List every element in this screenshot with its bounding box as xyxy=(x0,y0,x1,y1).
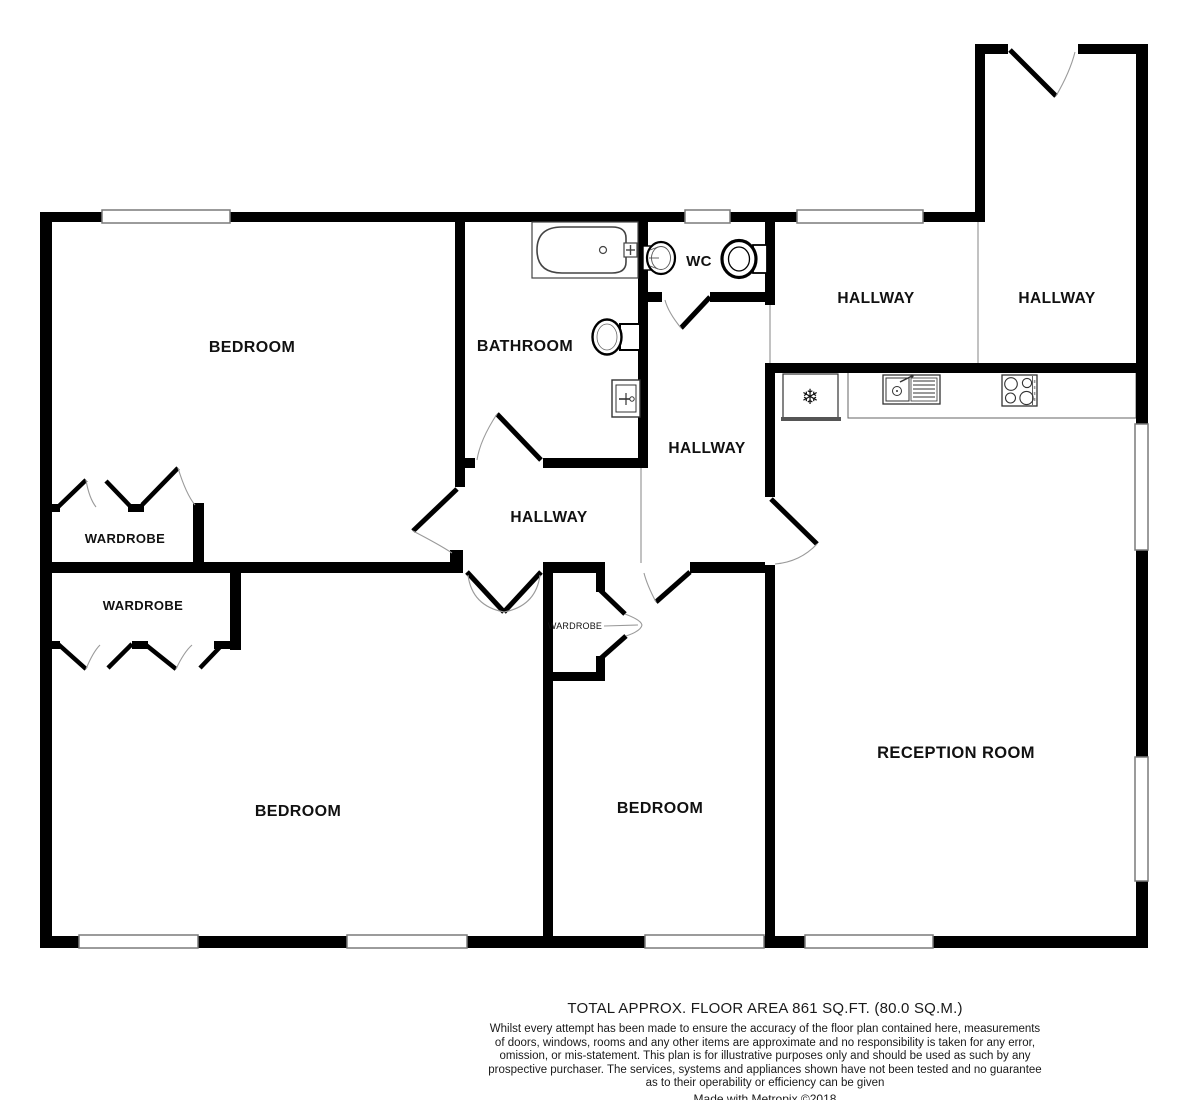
window xyxy=(685,210,730,223)
room-label-bedroom-3: BEDROOM xyxy=(617,800,703,817)
room-label-hallway-top-left: HALLWAY xyxy=(837,290,914,307)
door-leaf xyxy=(413,489,457,531)
wc-basin-icon xyxy=(643,242,675,274)
door-leaf xyxy=(497,414,541,460)
room-label-bathroom: BATHROOM xyxy=(477,338,573,355)
room-label-hallway-top-right: HALLWAY xyxy=(1018,290,1095,307)
hob-icon xyxy=(1002,375,1037,406)
room-label-wc: WC xyxy=(686,253,712,270)
disclaimer-line: Whilst every attempt has been made to en… xyxy=(370,1023,1160,1037)
window xyxy=(805,935,933,948)
bathroom-cabinet-icon xyxy=(612,380,640,417)
wall-bathroom-bottom-stub xyxy=(455,458,475,468)
wall-bathroom-left xyxy=(455,222,465,487)
wall-bottom xyxy=(40,936,1148,948)
door-arc xyxy=(413,531,452,553)
window xyxy=(1135,757,1148,881)
door-leaf xyxy=(504,572,541,612)
door-leaf xyxy=(656,572,690,602)
wall-wardrobe-upper-right xyxy=(193,503,204,573)
wall-wardrobe-lower-stub2 xyxy=(132,641,148,649)
wall-porch-left xyxy=(975,44,985,222)
window xyxy=(797,210,923,223)
room-label-bedroom-1: BEDROOM xyxy=(209,339,295,356)
door-arc xyxy=(1056,52,1075,96)
door-arc xyxy=(477,414,497,460)
floorplan-page: ❄ BEDROOM BATHROOM WC HALLWAY xyxy=(0,0,1200,1100)
toilet-icon xyxy=(722,241,767,278)
svg-text:❄: ❄ xyxy=(801,386,819,409)
room-label-wardrobe-lower: WARDROBE xyxy=(103,598,183,613)
disclaimer-line: omission, or mis-statement. This plan is… xyxy=(370,1050,1160,1064)
door-arc xyxy=(665,300,681,328)
metropix-credit: Made with Metropix ©2018 xyxy=(370,1092,1160,1100)
door-leaf xyxy=(600,636,626,659)
room-label-hallway-inner: HALLWAY xyxy=(510,509,587,526)
walls xyxy=(40,44,1148,948)
wall-kitchen xyxy=(765,363,1148,373)
door-arc xyxy=(775,544,817,564)
wall-wardrobe-lower-right xyxy=(230,565,241,650)
disclaimer-line: of doors, windows, rooms and any other i… xyxy=(370,1037,1160,1051)
wall-wc-bottom-stub xyxy=(648,292,662,302)
wall-wc-bottom xyxy=(710,292,773,302)
disclaimer-line: as to their operability or efficiency ca… xyxy=(370,1077,1160,1091)
room-labels: BEDROOM BATHROOM WC HALLWAY HALLWAY HALL… xyxy=(85,253,1096,820)
fridge-icon: ❄ xyxy=(781,374,841,421)
door-leaf xyxy=(600,590,625,614)
door-leaf xyxy=(771,499,817,544)
kitchen-sink-icon xyxy=(883,374,940,404)
door-arc xyxy=(626,625,642,636)
window xyxy=(102,210,230,223)
wall-small-wardrobe-right-upper xyxy=(596,568,605,592)
window xyxy=(1135,424,1148,550)
disclaimer-line: prospective purchaser. The services, sys… xyxy=(370,1064,1160,1078)
wall-mid-left xyxy=(40,562,452,573)
wall-mid-right-b xyxy=(690,562,775,573)
window xyxy=(347,935,467,948)
door-openings xyxy=(475,42,1078,565)
room-label-hallway-center: HALLWAY xyxy=(668,440,745,457)
total-area-text: TOTAL APPROX. FLOOR AREA 861 SQ.FT. (80.… xyxy=(370,1000,1160,1017)
bath-icon xyxy=(532,222,638,278)
wall-bathroom-bottom xyxy=(543,458,648,468)
wall-bedroom-divider xyxy=(543,562,553,942)
floorplan-canvas: ❄ BEDROOM BATHROOM WC HALLWAY xyxy=(0,0,1200,1100)
room-label-reception: RECEPTION ROOM xyxy=(877,744,1035,762)
door-leaf xyxy=(467,572,504,612)
room-label-wardrobe-small: WARDROBE xyxy=(548,621,602,631)
window xyxy=(645,935,764,948)
room-label-wardrobe-upper: WARDROBE xyxy=(85,531,165,546)
wardrobe-label-leader xyxy=(604,625,638,626)
wall-mid-stub xyxy=(450,550,463,573)
door-leaf xyxy=(1010,50,1056,96)
footer: TOTAL APPROX. FLOOR AREA 861 SQ.FT. (80.… xyxy=(370,1000,1160,1100)
window xyxy=(79,935,198,948)
wall-small-wardrobe-bottom xyxy=(543,672,605,681)
wall-left xyxy=(40,212,52,948)
room-label-bedroom-2: BEDROOM xyxy=(255,803,341,820)
wall-hall-reception-lower xyxy=(765,565,775,942)
door-arc xyxy=(625,614,642,625)
bathroom-sink-icon xyxy=(593,320,641,355)
door-arc xyxy=(644,573,656,602)
wall-hall-reception-upper xyxy=(765,363,775,497)
